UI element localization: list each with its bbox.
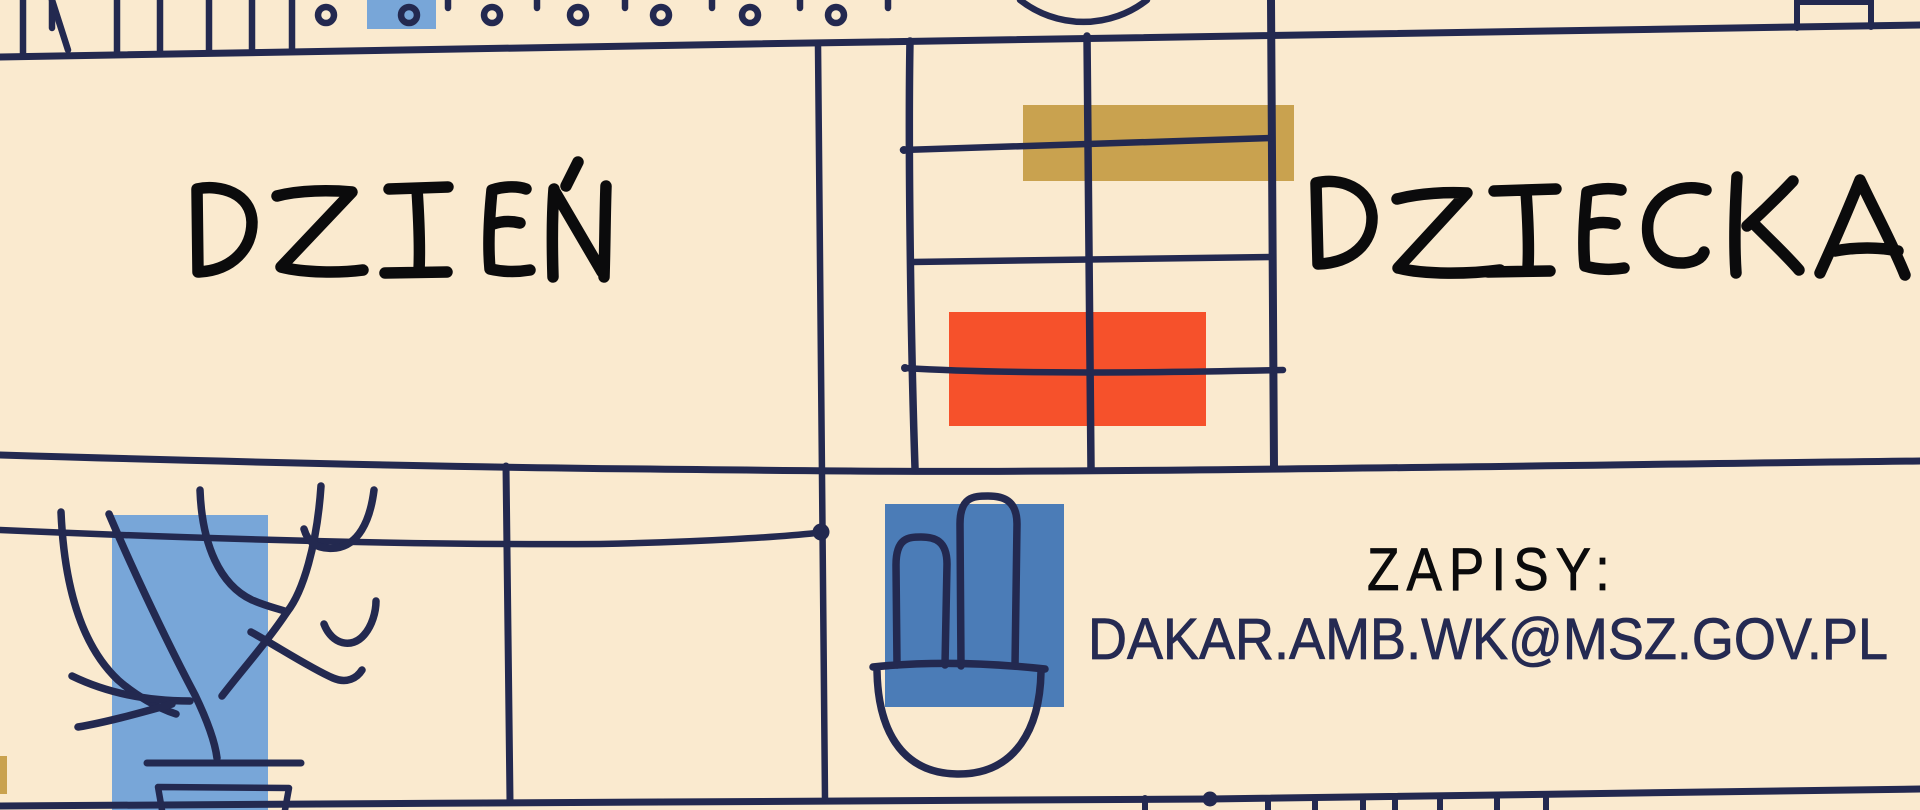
- svg-text:ZAPISY:: ZAPISY:: [1367, 536, 1617, 603]
- svg-text:DAKAR.AMB.WK@MSZ.GOV.PL: DAKAR.AMB.WK@MSZ.GOV.PL: [1088, 607, 1888, 672]
